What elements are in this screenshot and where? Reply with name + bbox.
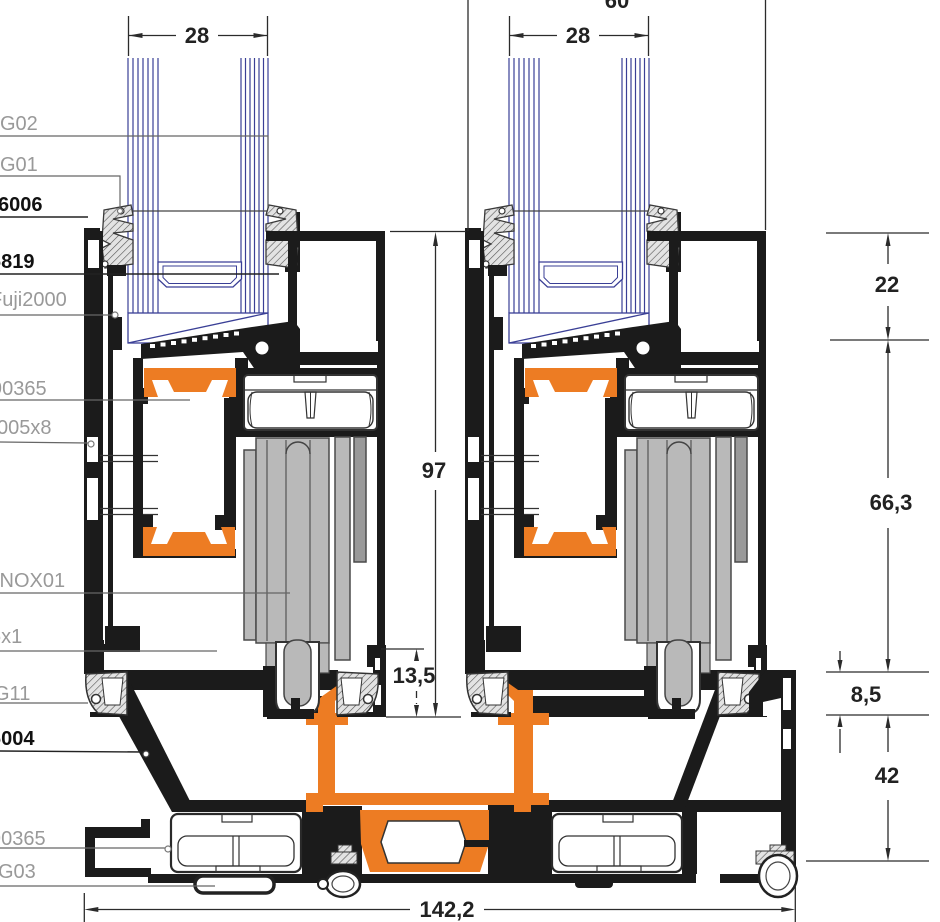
- svg-text:8,5: 8,5: [851, 682, 882, 707]
- svg-text:G11: G11: [0, 683, 30, 705]
- svg-text:INOX01: INOX01: [0, 570, 65, 592]
- svg-text:142,2: 142,2: [419, 897, 474, 922]
- svg-text:42: 42: [875, 763, 899, 788]
- svg-text:90365: 90365: [0, 828, 46, 850]
- svg-text:Fuji2000: Fuji2000: [0, 289, 67, 311]
- svg-text:22: 22: [875, 272, 899, 297]
- svg-text:97: 97: [422, 458, 446, 483]
- svg-text:6004: 6004: [0, 728, 35, 750]
- svg-text:6006: 6006: [0, 194, 43, 216]
- svg-text:13,5: 13,5: [393, 663, 436, 688]
- svg-text:66,3: 66,3: [870, 490, 913, 515]
- svg-text:6819: 6819: [0, 251, 35, 273]
- svg-text:6x1: 6x1: [0, 626, 22, 648]
- svg-text:60: 60: [605, 0, 629, 13]
- svg-text:005x8: 005x8: [0, 417, 52, 439]
- svg-text:G01: G01: [0, 154, 38, 176]
- svg-text:G03: G03: [0, 861, 36, 883]
- svg-text:90365: 90365: [0, 378, 47, 400]
- svg-text:G02: G02: [0, 113, 38, 135]
